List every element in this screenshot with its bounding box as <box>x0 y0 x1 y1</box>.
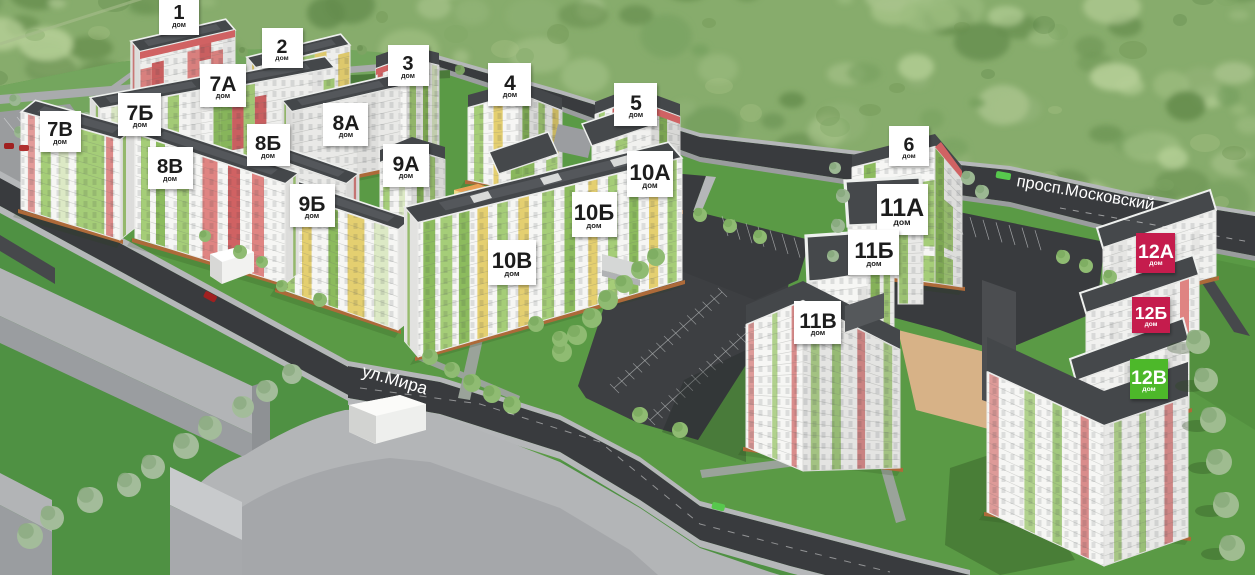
svg-text:дом: дом <box>629 110 643 119</box>
svg-text:дом: дом <box>1145 321 1158 328</box>
svg-text:дом: дом <box>504 269 519 278</box>
svg-text:дом: дом <box>642 181 658 190</box>
svg-text:дом: дом <box>163 175 177 183</box>
svg-text:12Б: 12Б <box>1135 303 1168 323</box>
svg-text:дом: дом <box>866 259 881 268</box>
svg-text:дом: дом <box>401 73 415 80</box>
svg-text:дом: дом <box>305 211 319 220</box>
svg-text:дом: дом <box>133 120 147 129</box>
svg-text:дом: дом <box>172 22 186 29</box>
svg-text:дом: дом <box>902 153 915 160</box>
svg-text:дом: дом <box>275 55 288 62</box>
svg-text:3: 3 <box>402 53 413 75</box>
svg-text:дом: дом <box>53 139 67 146</box>
svg-text:дом: дом <box>399 171 413 180</box>
svg-text:дом: дом <box>1149 260 1162 267</box>
svg-text:дом: дом <box>339 130 353 139</box>
svg-text:7В: 7В <box>47 119 73 141</box>
svg-text:1: 1 <box>173 2 184 24</box>
svg-text:дом: дом <box>261 152 275 160</box>
svg-text:дом: дом <box>1142 386 1155 393</box>
svg-text:дом: дом <box>503 90 517 99</box>
svg-text:дом: дом <box>811 328 825 337</box>
svg-text:дом: дом <box>216 91 230 100</box>
svg-text:дом: дом <box>586 221 601 230</box>
svg-text:дом: дом <box>893 217 910 227</box>
